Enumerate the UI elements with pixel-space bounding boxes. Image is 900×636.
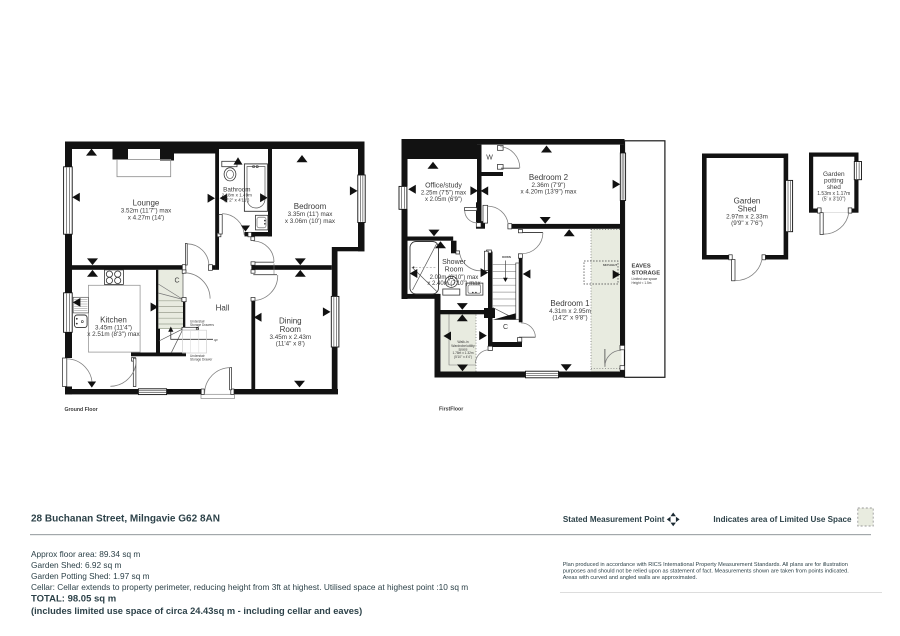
svg-text:Storage Drawer: Storage Drawer [190, 358, 213, 362]
svg-text:(5' x 3'10"): (5' x 3'10") [822, 196, 846, 202]
svg-text:Stated Measurement Point: Stated Measurement Point [563, 515, 665, 524]
svg-text:Shed: Shed [738, 204, 757, 213]
svg-text:STORAGE: STORAGE [632, 271, 661, 277]
svg-text:Lounge: Lounge [133, 199, 160, 208]
svg-text:(7'2" x 4'11"): (7'2" x 4'11") [224, 197, 250, 202]
svg-text:(9'9" x 7'6"): (9'9" x 7'6") [731, 220, 763, 227]
svg-text:Ground Floor: Ground Floor [65, 407, 98, 413]
svg-text:Approx floor area: 89.34 sq m: Approx floor area: 89.34 sq m [31, 549, 140, 559]
svg-text:x 2.05m (6'9"): x 2.05m (6'9") [425, 197, 462, 203]
svg-text:(11'4" x 8'): (11'4" x 8') [276, 340, 305, 347]
svg-text:(5'10" x 4'4"): (5'10" x 4'4") [454, 355, 472, 359]
svg-text:Bedroom 1: Bedroom 1 [550, 299, 590, 308]
svg-text:EAVES: EAVES [632, 264, 651, 270]
svg-text:Indicates area of Limited Use: Indicates area of Limited Use Space [713, 515, 852, 524]
svg-text:Storage Drawers: Storage Drawers [190, 323, 214, 327]
svg-text:Areas with curved and angled w: Areas with curved and angled walls are a… [563, 575, 698, 581]
svg-text:Plan produced in accordance w: Plan produced in accordance with RICS In… [563, 562, 848, 568]
svg-text:Room: Room [445, 267, 464, 274]
svg-text:Room: Room [280, 325, 302, 334]
svg-text:Hall: Hall [216, 303, 230, 312]
svg-text:C: C [503, 324, 508, 331]
svg-text:Height < 1.5m: Height < 1.5m [632, 281, 652, 285]
svg-text:x 3.06m (10') max: x 3.06m (10') max [285, 218, 336, 225]
svg-text:x 2.51m (8'3") max: x 2.51m (8'3") max [87, 331, 140, 338]
svg-text:Shower: Shower [442, 259, 466, 266]
svg-text:DOWN: DOWN [502, 255, 511, 259]
svg-text:FirstFloor: FirstFloor [439, 407, 463, 413]
svg-text:2.25m (7'5") max: 2.25m (7'5") max [421, 191, 466, 197]
svg-text:Garden Shed: 6.92 sq m: Garden Shed: 6.92 sq m [31, 560, 121, 570]
svg-text:Bedroom: Bedroom [294, 202, 327, 211]
svg-text:W: W [486, 154, 493, 161]
svg-text:purposes and should not be rel: purposes and should not be relied upon a… [563, 569, 850, 575]
svg-text:x 2.40m (7'10") max: x 2.40m (7'10") max [427, 281, 480, 287]
svg-text:x 4.20m (13'9") max: x 4.20m (13'9") max [521, 188, 578, 195]
svg-text:C: C [174, 277, 179, 284]
svg-text:28 Buchanan Street, Milngavie: 28 Buchanan Street, Milngavie G62 8AN [31, 514, 220, 525]
svg-text:Office/study: Office/study [425, 183, 462, 190]
svg-text:(14'2" x 9'8"): (14'2" x 9'8") [552, 314, 587, 321]
svg-text:(includes limited use space of: (includes limited use space of circa 24.… [31, 606, 362, 616]
svg-text:x 4.27m (14'): x 4.27m (14') [128, 215, 165, 222]
svg-text:Kitchen: Kitchen [100, 316, 127, 325]
svg-text:Garden Potting Shed: 1.97 sq m: Garden Potting Shed: 1.97 sq m [31, 571, 150, 581]
svg-text:SKYLIGHT: SKYLIGHT [603, 263, 617, 267]
svg-text:Cellar: Cellar extends to prop: Cellar: Cellar extends to property perim… [31, 582, 468, 592]
svg-text:3.35m (11') max: 3.35m (11') max [288, 211, 334, 218]
svg-text:up: up [214, 338, 218, 342]
svg-text:TOTAL: 98.05 sq m: TOTAL: 98.05 sq m [31, 594, 116, 605]
svg-text:shed: shed [827, 184, 841, 191]
svg-text:Bedroom 2: Bedroom 2 [529, 173, 569, 182]
